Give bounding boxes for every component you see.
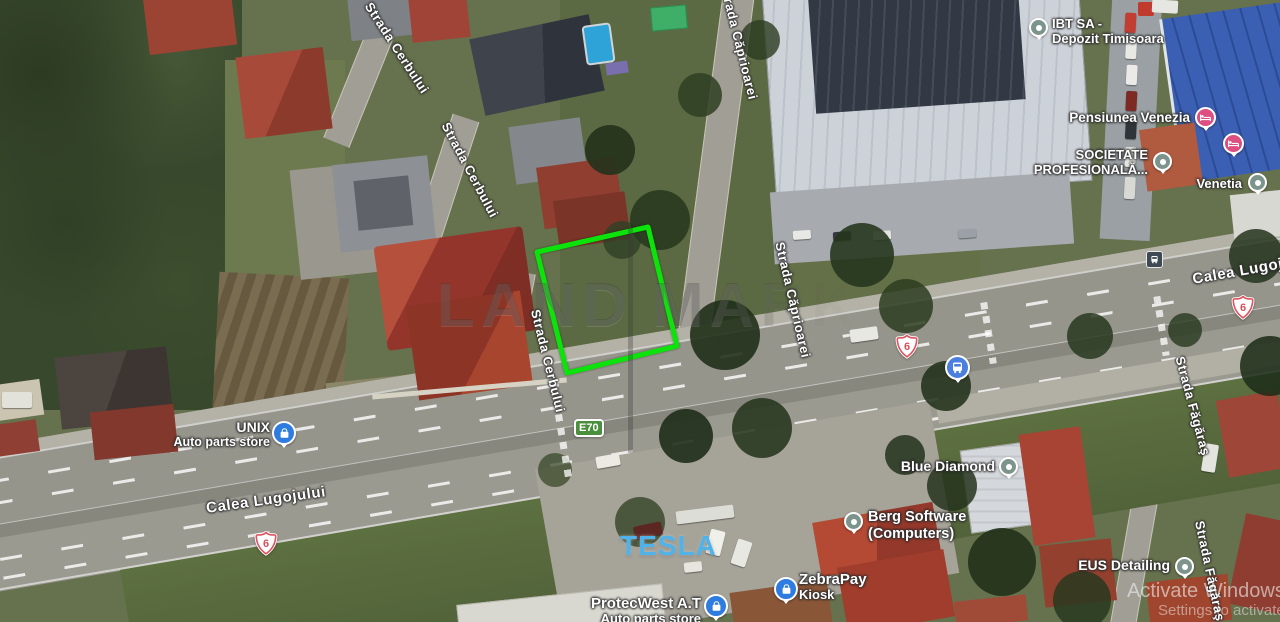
lodging-icon[interactable] xyxy=(1195,107,1216,128)
poi-label-venetia[interactable]: Venetia xyxy=(1196,176,1242,191)
generic-poi-icon[interactable] xyxy=(999,457,1018,476)
poi-label-ibt-sa[interactable]: IBT SA -Depozit Timisoara xyxy=(1052,16,1164,46)
shopping-icon[interactable] xyxy=(774,577,798,601)
shopping-icon[interactable] xyxy=(704,594,728,618)
poi-label-societate-profesionala[interactable]: SOCIETATEPROFESIONALĂ... xyxy=(1034,147,1148,177)
dn6-route-shield: 6 xyxy=(254,531,278,557)
bus-stop-icon[interactable] xyxy=(945,355,970,380)
dn6-route-shield: 6 xyxy=(1231,295,1255,321)
lodging-icon[interactable] xyxy=(1223,133,1244,154)
poi-label-berg-software[interactable]: Berg Software(Computers) xyxy=(868,509,966,543)
bus-stop-small-icon[interactable] xyxy=(1146,251,1163,268)
svg-text:6: 6 xyxy=(1240,302,1246,314)
poi-label-zebrapay[interactable]: ZebraPay Kiosk xyxy=(799,572,867,602)
shopping-icon[interactable] xyxy=(272,421,296,445)
satellite-map[interactable]: LAND MARK Strada Cerbului Strada Cerbulu… xyxy=(0,0,1280,622)
poi-label-protecwest[interactable]: ProtecWest A.T Auto parts store xyxy=(591,596,701,622)
poi-label-eus-detailing[interactable]: EUS Detailing xyxy=(1078,558,1170,573)
dn6-route-shield: 6 xyxy=(895,334,919,360)
poi-label-blue-diamond[interactable]: Blue Diamond xyxy=(901,459,995,474)
generic-poi-icon[interactable] xyxy=(844,512,863,531)
generic-poi-icon[interactable] xyxy=(1153,152,1172,171)
svg-text:6: 6 xyxy=(904,341,910,353)
generic-poi-icon[interactable] xyxy=(1175,557,1194,576)
poi-label-tesla[interactable]: TESLA xyxy=(620,538,717,553)
svg-text:6: 6 xyxy=(263,538,269,550)
poi-label-unix[interactable]: UNIX Auto parts store xyxy=(173,420,270,450)
e70-route-shield: E70 xyxy=(574,419,604,437)
landmark-watermark-bar xyxy=(628,228,633,453)
poi-label-pensiunea-venezia[interactable]: Pensiunea Venezia xyxy=(1069,110,1190,125)
activate-windows-watermark: Activate Windows xyxy=(1127,580,1280,603)
activate-windows-watermark-line2: Settings to activate W xyxy=(1158,602,1280,619)
property-outline[interactable] xyxy=(0,0,1280,622)
generic-poi-icon[interactable] xyxy=(1248,173,1267,192)
landmark-watermark-right: MARK xyxy=(652,270,862,341)
generic-poi-icon[interactable] xyxy=(1029,18,1048,37)
